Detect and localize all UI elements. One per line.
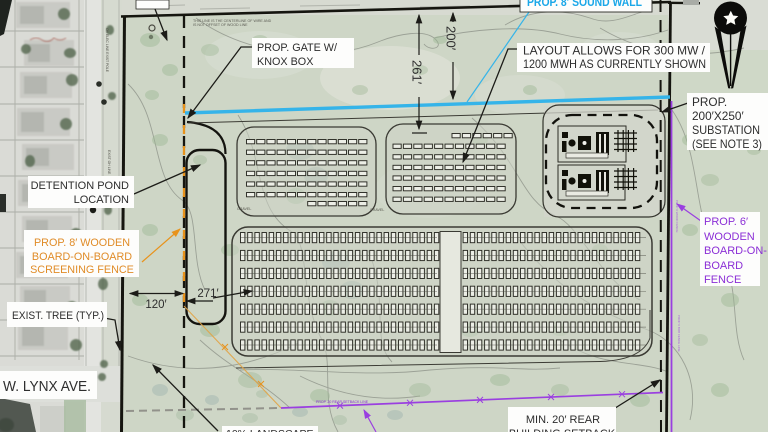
- svg-text:GRAVEL: GRAVEL: [370, 208, 384, 212]
- svg-text:EXIST. TREE (TYP.): EXIST. TREE (TYP.): [12, 310, 104, 322]
- svg-text:271′: 271′: [197, 288, 218, 300]
- svg-text:GRAVEL: GRAVEL: [237, 207, 251, 211]
- svg-text:WOODEN: WOODEN: [704, 231, 755, 243]
- svg-text:FENCE: FENCE: [704, 274, 741, 286]
- svg-text:261′: 261′: [410, 60, 425, 85]
- svg-text:200′: 200′: [444, 26, 459, 51]
- svg-text:PROP. 8′ WOODEN: PROP. 8′ WOODEN: [34, 237, 130, 249]
- svg-text:PROP. GATE W/: PROP. GATE W/: [257, 42, 337, 54]
- svg-text:1200 MWH AS CURRENTLY SHOWN: 1200 MWH AS CURRENTLY SHOWN: [523, 57, 706, 71]
- svg-text:KNOX BOX: KNOX BOX: [257, 56, 313, 68]
- svg-text:MIN. 20′ REAR: MIN. 20′ REAR: [526, 414, 600, 426]
- svg-text:BOARD-ON-: BOARD-ON-: [704, 245, 767, 257]
- svg-text:LOCATION: LOCATION: [74, 194, 129, 206]
- svg-text:BOARD: BOARD: [704, 260, 743, 272]
- svg-text:PROP. 20 REAR SETBACK LINE: PROP. 20 REAR SETBACK LINE: [316, 400, 369, 404]
- svg-text:DETENTION POND: DETENTION POND: [31, 180, 129, 192]
- svg-text:120′: 120′: [145, 299, 166, 311]
- svg-text:W. LYNX AVE.: W. LYNX AVE.: [3, 378, 91, 395]
- svg-text:(SEE NOTE 3): (SEE NOTE 3): [692, 137, 762, 151]
- svg-text:OH ELEC LINE EXIST POLE: OH ELEC LINE EXIST POLE: [105, 28, 109, 73]
- svg-text:SUBSTATION: SUBSTATION: [692, 123, 760, 137]
- svg-text:EXIST OH LINE: EXIST OH LINE: [107, 150, 111, 175]
- svg-text:200′X250′: 200′X250′: [692, 109, 744, 123]
- svg-text:SCREENING FENCE: SCREENING FENCE: [30, 264, 134, 276]
- svg-text:LAYOUT ALLOWS FOR 300 MW /: LAYOUT ALLOWS FOR 300 MW /: [523, 44, 706, 58]
- svg-text:IS NOT OFFSET OF WOOD LINE: IS NOT OFFSET OF WOOD LINE: [193, 23, 248, 27]
- svg-text:10% LANDSCAPE: 10% LANDSCAPE: [226, 428, 314, 432]
- svg-text:BUILDING SETBACK: BUILDING SETBACK: [509, 428, 616, 432]
- svg-text:PROP.: PROP.: [692, 95, 727, 109]
- svg-text:PROP. 6′: PROP. 6′: [704, 216, 748, 228]
- svg-text:PROP. 8′ SOUND WALL: PROP. 8′ SOUND WALL: [527, 0, 642, 9]
- svg-text:PROP 6 BOB FENCE LINE: PROP 6 BOB FENCE LINE: [677, 315, 681, 352]
- svg-text:BOARD-ON-BOARD: BOARD-ON-BOARD: [32, 251, 132, 263]
